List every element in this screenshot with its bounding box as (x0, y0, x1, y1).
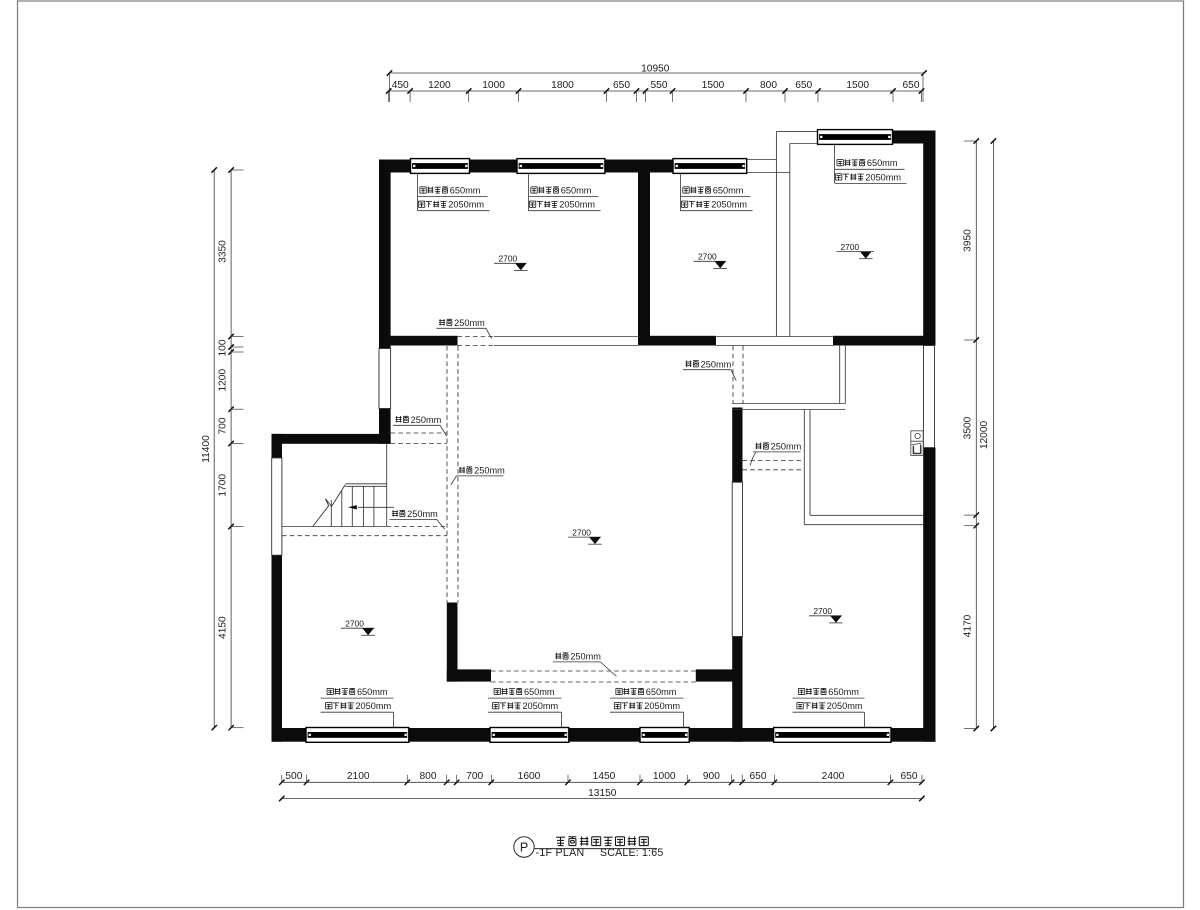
svg-text:13150: 13150 (588, 788, 617, 799)
svg-text:1000: 1000 (653, 771, 676, 782)
svg-text:1450: 1450 (593, 771, 616, 782)
svg-text:2100: 2100 (347, 771, 370, 782)
svg-text:650: 650 (795, 80, 812, 91)
svg-text:11400: 11400 (201, 435, 212, 463)
svg-text:1000: 1000 (482, 80, 505, 91)
svg-text:2700: 2700 (572, 527, 591, 537)
svg-text:2700: 2700 (499, 254, 518, 264)
svg-text:2700: 2700 (813, 606, 832, 616)
svg-text:2050mm: 2050mm (827, 701, 863, 711)
svg-text:2050mm: 2050mm (355, 701, 391, 711)
svg-text:12000: 12000 (979, 421, 990, 450)
svg-text:250mm: 250mm (411, 415, 442, 425)
svg-text:1600: 1600 (518, 771, 541, 782)
svg-text:2700: 2700 (841, 242, 860, 252)
svg-text:650mm: 650mm (561, 186, 592, 196)
svg-text:500: 500 (285, 771, 302, 782)
svg-text:2050mm: 2050mm (448, 200, 484, 210)
svg-text:650mm: 650mm (450, 186, 481, 196)
svg-text:650mm: 650mm (524, 687, 555, 697)
svg-text:3950: 3950 (963, 229, 974, 252)
svg-text:250mm: 250mm (570, 652, 601, 662)
svg-text:1700: 1700 (217, 474, 228, 497)
svg-text:900: 900 (703, 771, 720, 782)
svg-text:100: 100 (217, 339, 228, 356)
svg-text:1500: 1500 (702, 80, 725, 91)
svg-text:3350: 3350 (217, 240, 228, 263)
svg-text:SCALE: 1:65: SCALE: 1:65 (600, 847, 663, 859)
svg-text:4150: 4150 (217, 616, 228, 639)
svg-text:2700: 2700 (345, 618, 364, 628)
svg-text:P: P (520, 840, 528, 854)
svg-text:1200: 1200 (428, 80, 451, 91)
svg-text:650mm: 650mm (357, 687, 388, 697)
svg-text:650: 650 (613, 80, 630, 91)
svg-text:2050mm: 2050mm (559, 200, 595, 210)
svg-text:650: 650 (903, 80, 920, 91)
svg-text:1200: 1200 (217, 369, 228, 392)
svg-text:700: 700 (466, 771, 483, 782)
svg-text:3500: 3500 (963, 416, 974, 439)
svg-text:250mm: 250mm (407, 509, 438, 519)
svg-text:650mm: 650mm (867, 158, 898, 168)
svg-text:-1F PLAN: -1F PLAN (536, 847, 585, 859)
svg-text:1800: 1800 (551, 80, 574, 91)
svg-text:2700: 2700 (698, 252, 717, 262)
svg-text:2400: 2400 (822, 771, 845, 782)
svg-text:2050mm: 2050mm (711, 200, 747, 210)
svg-text:1500: 1500 (846, 80, 869, 91)
svg-text:250mm: 250mm (701, 359, 732, 369)
svg-text:550: 550 (651, 80, 668, 91)
svg-text:450: 450 (392, 80, 409, 91)
svg-text:800: 800 (420, 771, 437, 782)
svg-text:650mm: 650mm (646, 687, 677, 697)
svg-text:650: 650 (750, 771, 767, 782)
svg-text:2050mm: 2050mm (644, 701, 680, 711)
svg-text:10950: 10950 (641, 64, 670, 75)
svg-text:650: 650 (901, 771, 918, 782)
svg-text:250mm: 250mm (454, 318, 485, 328)
svg-text:650mm: 650mm (828, 687, 859, 697)
svg-text:250mm: 250mm (771, 442, 802, 452)
svg-text:4170: 4170 (963, 614, 974, 637)
svg-text:2050mm: 2050mm (522, 701, 558, 711)
svg-text:250mm: 250mm (474, 466, 505, 476)
svg-text:800: 800 (760, 80, 777, 91)
svg-text:2050mm: 2050mm (865, 172, 901, 182)
svg-text:700: 700 (217, 417, 228, 434)
svg-text:650mm: 650mm (713, 186, 744, 196)
